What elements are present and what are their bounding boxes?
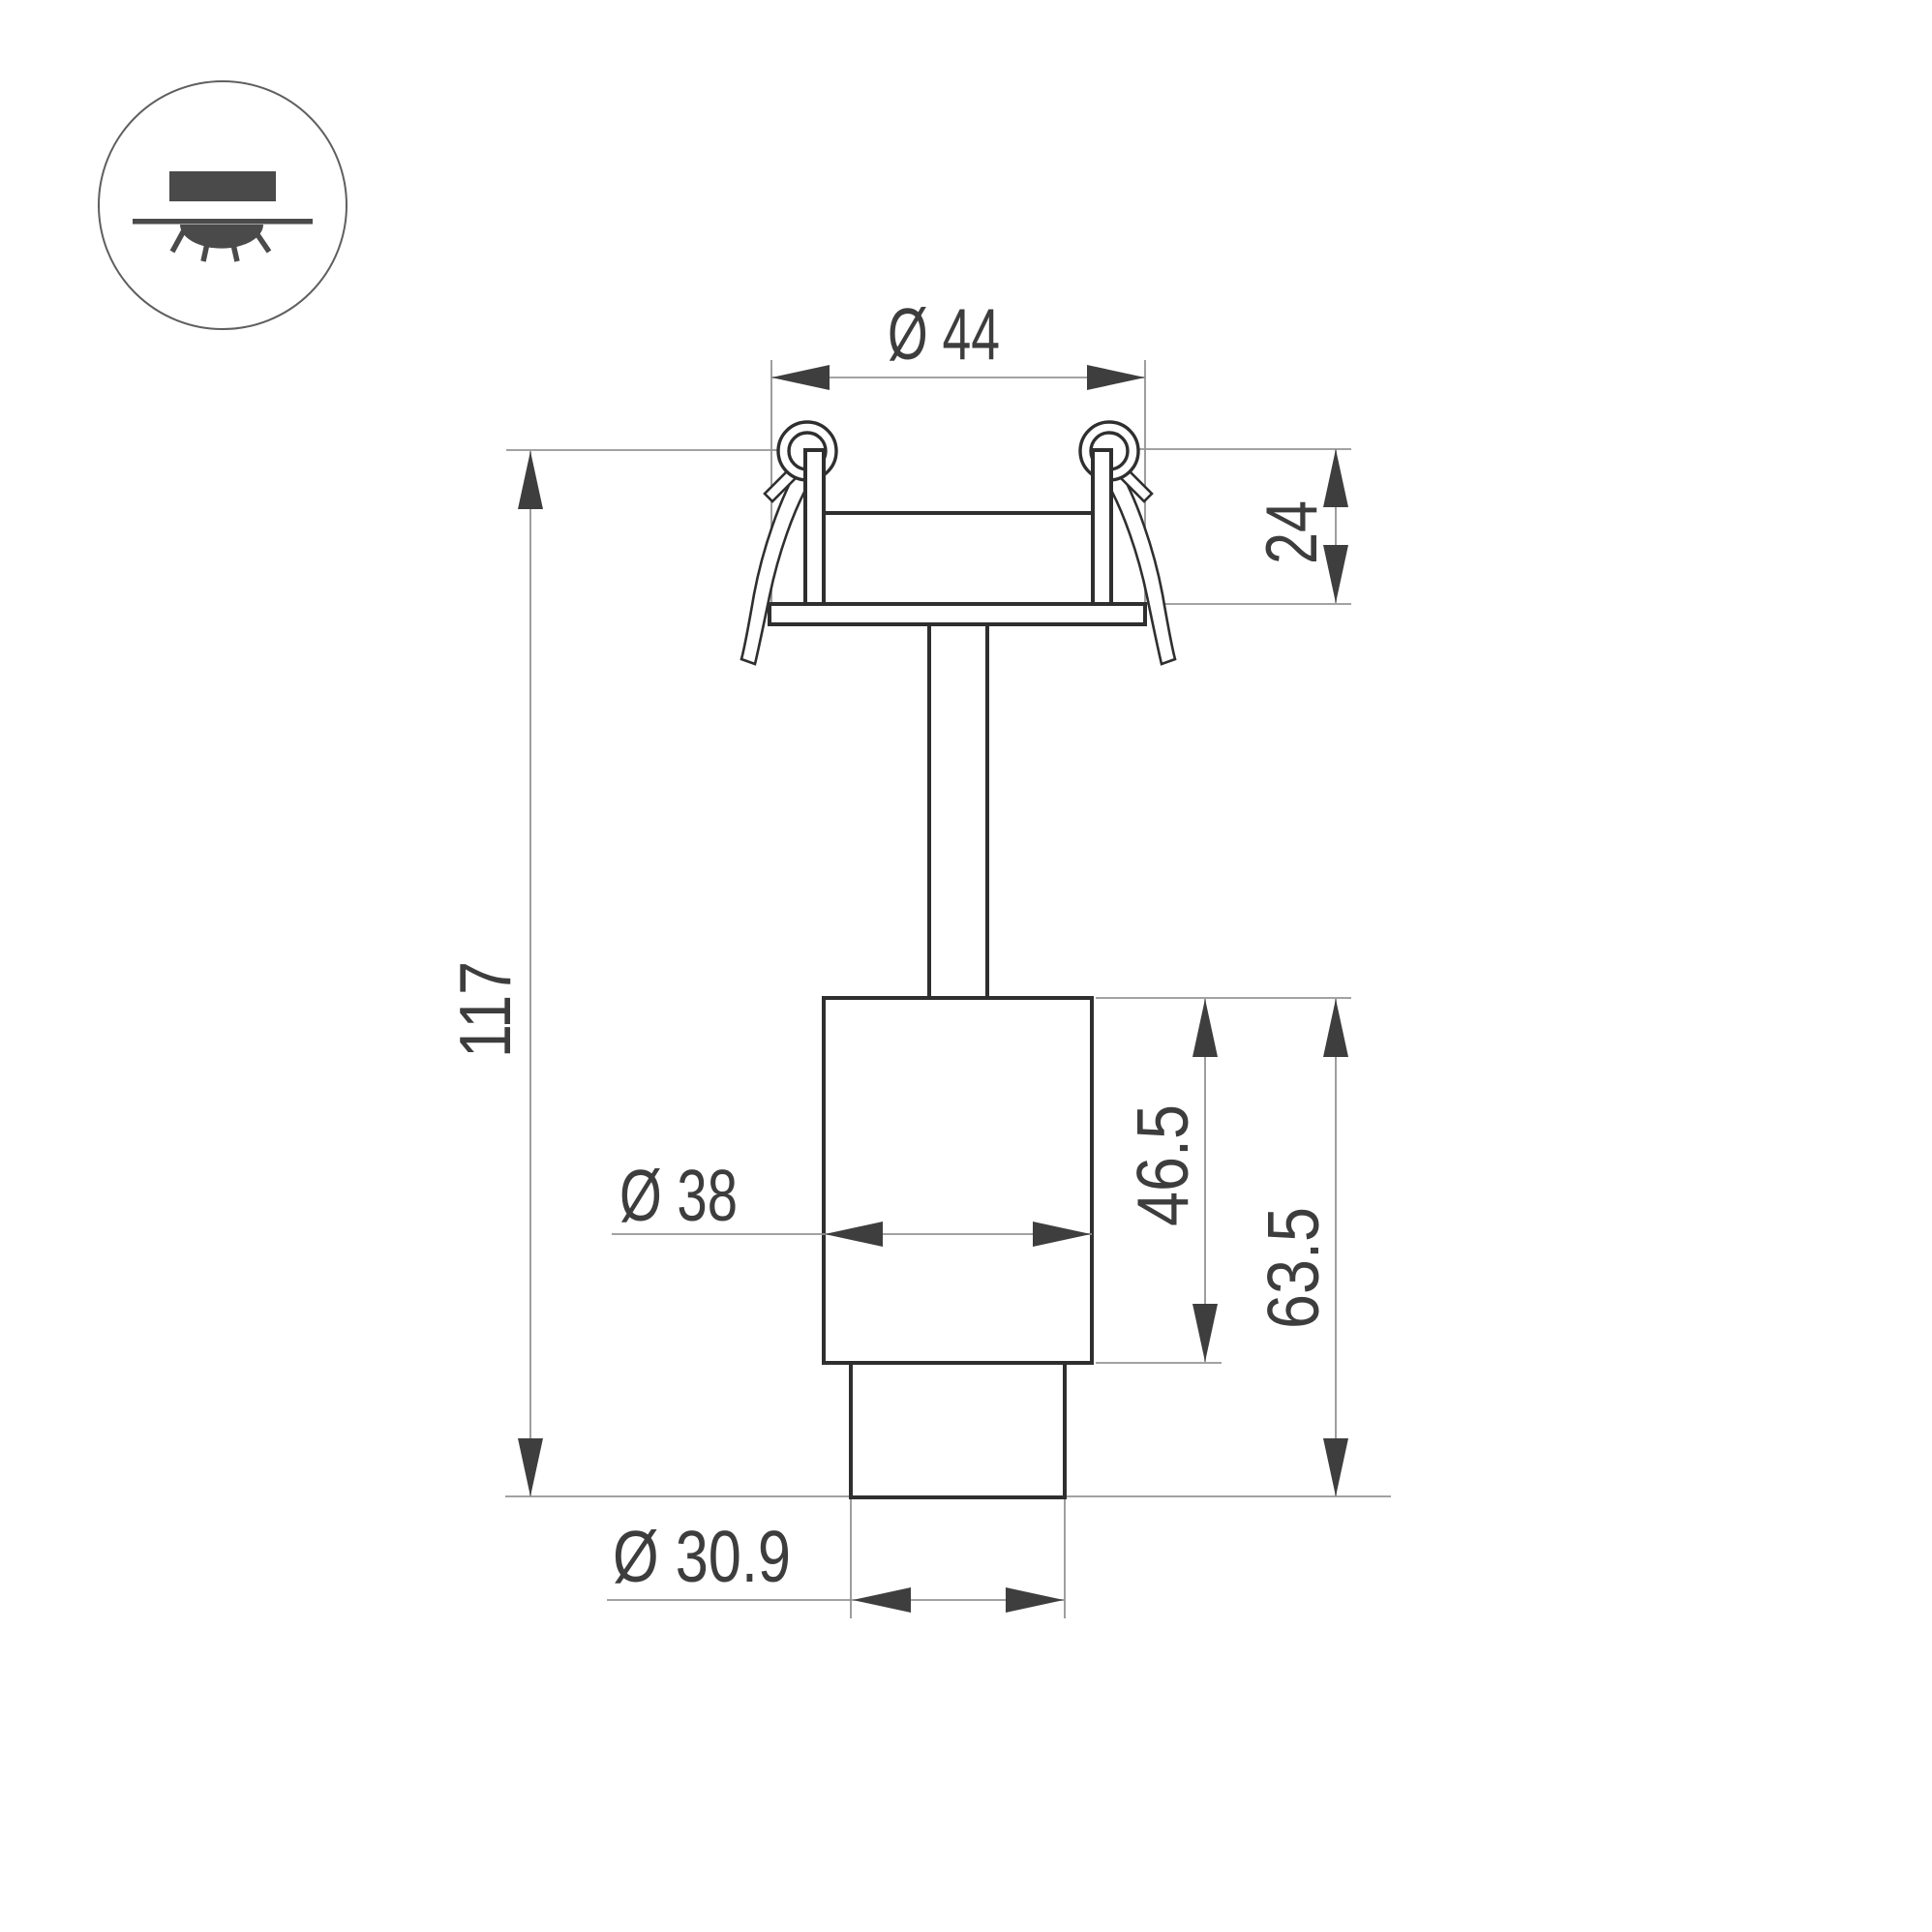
technical-drawing-page: Ø 44 24 117 Ø 38 46.5 63.5 Ø 30.9 — [0, 0, 1932, 1932]
trim-flange — [770, 604, 1145, 624]
luminaire-dimension-drawing: Ø 44 24 117 Ø 38 46.5 63.5 Ø 30.9 — [0, 0, 1932, 1932]
arrowhead-d309-left — [853, 1587, 911, 1613]
label-lower-height: 63.5 — [1253, 1207, 1334, 1329]
arrowhead-117-top — [518, 451, 543, 509]
arrowhead-46-5-bottom — [1192, 1304, 1218, 1362]
label-body-height: 46.5 — [1122, 1104, 1203, 1226]
arrowhead-24-top — [1323, 449, 1348, 507]
icon-ceiling-line — [133, 219, 313, 225]
luminaire-section — [741, 422, 1175, 1497]
arrowhead-d44-left — [771, 365, 830, 390]
arrowhead-117-bottom — [518, 1438, 543, 1496]
badge-circle — [99, 81, 347, 329]
arrowhead-63-5-bottom — [1323, 1438, 1348, 1496]
arrowhead-63-5-top — [1323, 999, 1348, 1057]
label-bottom-diameter: Ø 30.9 — [613, 1516, 791, 1597]
icon-housing — [169, 171, 276, 201]
label-body-diameter: Ø 38 — [619, 1155, 738, 1236]
label-overall-height: 117 — [444, 961, 526, 1058]
arrowhead-d309-right — [1006, 1587, 1064, 1613]
recessed-light-badge — [99, 81, 347, 329]
cup-wall-right — [1093, 450, 1111, 604]
cup-wall-left — [805, 450, 824, 604]
label-recess-depth: 24 — [1251, 500, 1332, 564]
arrowhead-46-5-top — [1192, 999, 1218, 1057]
arrowhead-d44-right — [1087, 365, 1145, 390]
label-top-diameter: Ø 44 — [888, 293, 1000, 375]
body-cylinder — [824, 998, 1092, 1363]
lower-cylinder — [851, 1363, 1065, 1497]
